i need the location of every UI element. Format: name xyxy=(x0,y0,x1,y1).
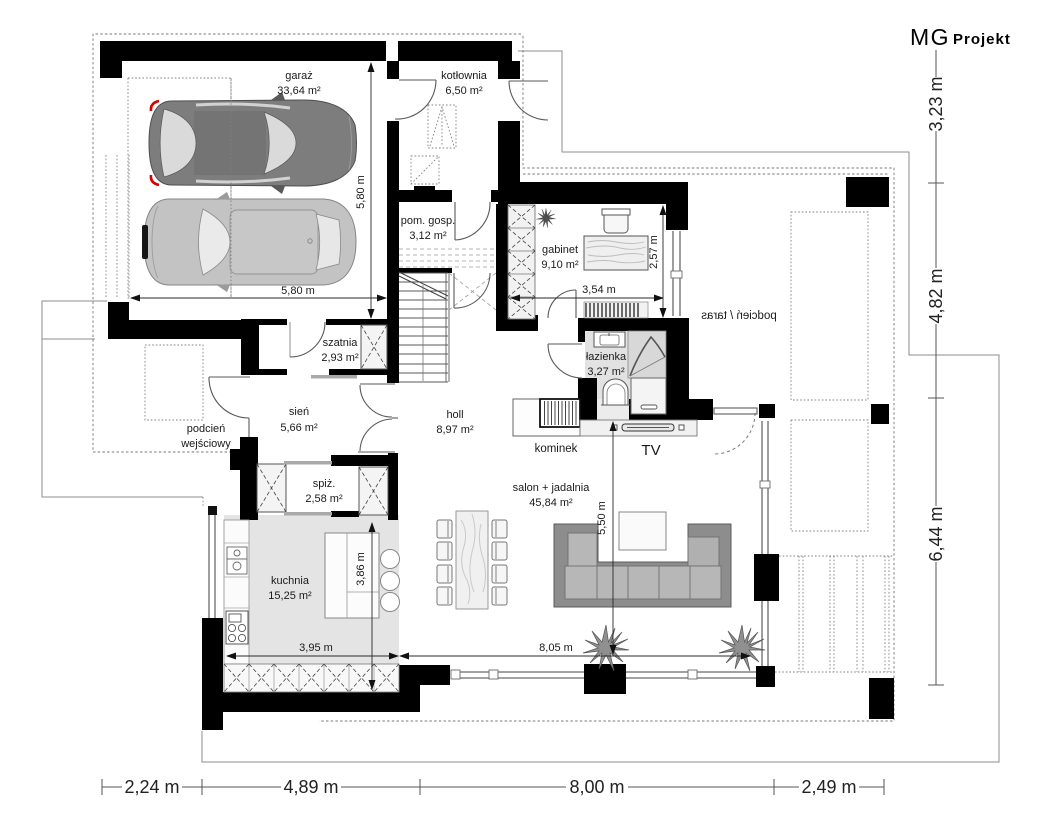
svg-text:MG: MG xyxy=(910,24,950,50)
svg-text:2,49 m: 2,49 m xyxy=(801,777,856,797)
svg-text:podcień: podcień xyxy=(187,423,226,435)
svg-text:5,80 m: 5,80 m xyxy=(355,175,367,209)
svg-text:2,57 m: 2,57 m xyxy=(648,235,660,269)
svg-text:wejściowy: wejściowy xyxy=(180,438,231,450)
svg-text:3,23 m: 3,23 m xyxy=(926,76,946,131)
svg-text:2,93 m²: 2,93 m² xyxy=(321,352,359,364)
svg-text:3,54 m: 3,54 m xyxy=(582,284,616,296)
svg-text:5,66 m²: 5,66 m² xyxy=(280,422,318,434)
svg-text:holl: holl xyxy=(446,409,463,421)
svg-text:6,44 m: 6,44 m xyxy=(926,506,946,561)
svg-text:8,97 m²: 8,97 m² xyxy=(436,424,474,436)
svg-text:3,86 m: 3,86 m xyxy=(355,552,367,586)
svg-text:4,89 m: 4,89 m xyxy=(283,777,338,797)
svg-text:9,10 m²: 9,10 m² xyxy=(541,259,579,271)
svg-text:5,80 m: 5,80 m xyxy=(281,285,315,297)
svg-text:salon + jadalnia: salon + jadalnia xyxy=(513,482,591,494)
svg-text:łazienka: łazienka xyxy=(586,351,627,363)
svg-text:Projekt: Projekt xyxy=(953,31,1011,48)
svg-text:8,05 m: 8,05 m xyxy=(539,642,573,654)
svg-text:15,25 m²: 15,25 m² xyxy=(268,590,312,602)
svg-text:4,82 m: 4,82 m xyxy=(926,268,946,323)
svg-text:3,27 m²: 3,27 m² xyxy=(587,366,625,378)
svg-text:gabinet: gabinet xyxy=(542,244,578,256)
svg-text:45,84 m²: 45,84 m² xyxy=(529,497,573,509)
svg-text:podcień / taras: podcień / taras xyxy=(701,310,777,322)
svg-text:2,58 m²: 2,58 m² xyxy=(305,493,343,505)
svg-text:kuchnia: kuchnia xyxy=(271,575,310,587)
svg-text:pom. gosp.: pom. gosp. xyxy=(401,215,455,227)
svg-text:3,95 m: 3,95 m xyxy=(299,642,333,654)
svg-text:szatnia: szatnia xyxy=(323,337,359,349)
svg-text:3,12 m²: 3,12 m² xyxy=(409,230,447,242)
svg-text:5,50 m: 5,50 m xyxy=(596,501,608,535)
svg-text:garaż: garaż xyxy=(285,70,313,82)
svg-text:sień: sień xyxy=(289,406,309,418)
svg-text:kominek: kominek xyxy=(535,443,578,455)
svg-text:8,00 m: 8,00 m xyxy=(569,777,624,797)
svg-text:33,64 m²: 33,64 m² xyxy=(277,85,321,97)
svg-text:TV: TV xyxy=(641,442,660,459)
svg-text:spiż.: spiż. xyxy=(313,478,336,490)
svg-text:2,24 m: 2,24 m xyxy=(124,777,179,797)
svg-text:kotłownia: kotłownia xyxy=(441,70,488,82)
svg-text:6,50 m²: 6,50 m² xyxy=(445,85,483,97)
